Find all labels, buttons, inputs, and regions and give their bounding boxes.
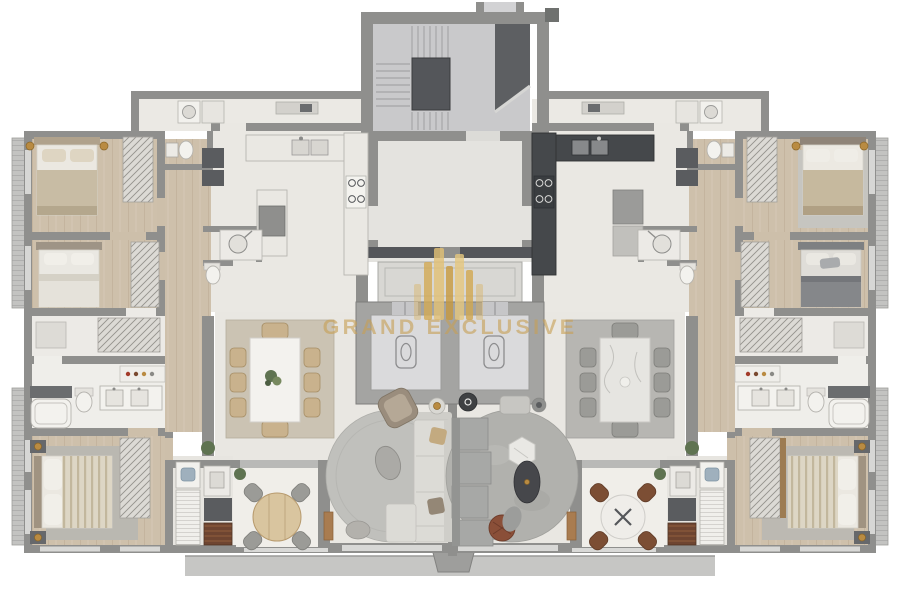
- side-table: [459, 393, 477, 411]
- bedroom-master-right: [750, 438, 870, 544]
- window: [25, 490, 31, 534]
- toiletry: [126, 372, 130, 376]
- pillow: [71, 253, 94, 265]
- oven-tower: [676, 148, 698, 168]
- wardrobe: [750, 438, 780, 518]
- window: [25, 150, 31, 194]
- door-gap: [735, 198, 743, 226]
- door-gap: [34, 356, 62, 364]
- plant: [654, 468, 666, 480]
- door-gap: [742, 428, 772, 436]
- sink: [292, 140, 309, 155]
- dining-chair: [230, 373, 246, 392]
- nightstand-lamp: [26, 142, 34, 150]
- wardrobe: [120, 438, 150, 518]
- toilet: [179, 141, 193, 159]
- console-decor: [588, 104, 600, 112]
- nightstand-lamp: [859, 534, 866, 541]
- dining-chair: [304, 398, 320, 417]
- window: [869, 490, 875, 534]
- door-gap: [126, 308, 156, 316]
- plant: [273, 377, 282, 386]
- table-bowl: [620, 377, 630, 387]
- wall: [761, 95, 769, 135]
- nightstand-lamp: [35, 534, 42, 541]
- door-gap: [220, 123, 246, 131]
- bedroom-master-left: [30, 438, 150, 544]
- toiletry: [150, 372, 154, 376]
- accent-pillow: [820, 257, 841, 269]
- closet-shelving: [740, 318, 802, 352]
- sink: [777, 390, 794, 406]
- laundry-cabinet: [676, 101, 698, 123]
- bed-blanket-striped: [788, 456, 838, 528]
- sink: [106, 390, 123, 406]
- bench: [324, 512, 333, 540]
- bed-headboard: [798, 242, 864, 250]
- plant: [234, 468, 246, 480]
- bed-headboard: [858, 456, 866, 528]
- washer-door: [705, 106, 718, 119]
- console-decor: [300, 104, 312, 112]
- bbq-cabinet: [668, 498, 696, 521]
- wardrobe: [747, 137, 777, 202]
- wardrobe: [741, 242, 769, 307]
- bedroom-mid-left: [36, 242, 159, 307]
- dining-chair: [262, 323, 288, 339]
- louver-cabinet: [176, 490, 200, 545]
- plant: [685, 441, 699, 455]
- wall: [516, 2, 524, 12]
- window: [120, 547, 160, 552]
- dining-chair: [230, 398, 246, 417]
- dining-chair: [230, 348, 246, 367]
- floor-plan-image: GRAND EXCLUSIVE: [0, 0, 900, 600]
- fridge-panel: [181, 468, 195, 481]
- window: [869, 246, 875, 290]
- bbq-area-left: [176, 462, 232, 545]
- door-gap: [157, 198, 165, 226]
- dining-chair: [262, 421, 288, 437]
- sink: [752, 390, 769, 406]
- bed-headboard: [34, 137, 100, 145]
- window: [869, 150, 875, 194]
- bed-headboard: [34, 456, 42, 528]
- pillow: [834, 149, 858, 162]
- wall: [539, 91, 769, 99]
- bed-headboard: [800, 137, 866, 145]
- sink: [311, 140, 328, 155]
- door-gap: [727, 438, 735, 462]
- toilet: [76, 392, 92, 412]
- toilet: [808, 392, 824, 412]
- wall: [361, 12, 549, 24]
- dining-chair: [654, 398, 670, 417]
- wall: [686, 316, 698, 456]
- walkin-closet-right: [740, 318, 864, 352]
- toiletry: [770, 372, 774, 376]
- pillow: [42, 149, 66, 162]
- wardrobe: [123, 137, 153, 202]
- door-gap: [165, 438, 173, 462]
- door-gap: [754, 232, 790, 240]
- modular-sofa: [457, 520, 493, 546]
- kitchen-island: [613, 190, 643, 224]
- console-bench: [500, 396, 530, 414]
- bed-throw: [803, 206, 863, 215]
- toilet: [206, 266, 220, 284]
- dining-chair: [654, 373, 670, 392]
- door-gap: [744, 308, 774, 316]
- nightstand-lamp: [792, 142, 800, 150]
- dining-chair: [612, 323, 638, 339]
- window: [40, 547, 100, 552]
- dining-chair: [580, 348, 596, 367]
- window: [740, 547, 780, 552]
- lobby-wall-dark: [362, 247, 440, 258]
- dining-chair: [304, 373, 320, 392]
- nightstand-lamp: [859, 443, 866, 450]
- wardrobe: [131, 242, 159, 307]
- wall: [476, 2, 484, 12]
- dining-chair: [580, 398, 596, 417]
- closet-shelving: [98, 318, 160, 352]
- toilet: [680, 266, 694, 284]
- dresser: [834, 322, 864, 348]
- pillow: [838, 459, 856, 490]
- faucet: [299, 137, 303, 141]
- pillow: [44, 253, 67, 265]
- floor-plan-page: GRAND EXCLUSIVE: [0, 0, 900, 600]
- window: [342, 545, 442, 551]
- bbq-sink: [210, 472, 224, 488]
- window: [244, 548, 328, 552]
- logo-bar: [455, 254, 464, 320]
- vase-top: [536, 402, 542, 408]
- window: [572, 548, 656, 552]
- dining-area-right: [566, 320, 674, 438]
- louver-cabinet: [700, 490, 724, 545]
- logo-bar: [424, 262, 432, 320]
- dining-chair: [612, 421, 638, 437]
- nightstand-lamp: [100, 142, 108, 150]
- dining-area-left: [226, 320, 334, 438]
- bench: [567, 512, 576, 540]
- faucet: [138, 388, 141, 391]
- bed-blanket-striped: [62, 456, 112, 528]
- bbq-sink: [676, 472, 690, 488]
- toiletry: [134, 372, 138, 376]
- oven-tower: [202, 170, 224, 186]
- wc-sink: [166, 143, 178, 157]
- dining-chair: [580, 373, 596, 392]
- faucet: [785, 388, 788, 391]
- plant: [265, 380, 271, 386]
- pillow: [838, 494, 856, 525]
- bbq-cabinet: [204, 498, 232, 521]
- bed-fold: [801, 276, 861, 282]
- terrace-beam: [582, 460, 660, 468]
- bath-ledge: [30, 386, 72, 398]
- toiletry: [142, 372, 146, 376]
- sink: [572, 140, 589, 155]
- wardrobe-wood-panel: [780, 438, 786, 518]
- toilet: [707, 141, 721, 159]
- logo-bar: [434, 248, 444, 320]
- terrace-beam: [240, 460, 318, 468]
- sofa-back: [452, 418, 460, 546]
- sink: [591, 140, 608, 155]
- door-gap: [128, 428, 158, 436]
- stairwell-landing: [412, 58, 450, 110]
- laundry-cabinet: [202, 101, 224, 123]
- accent-pillow: [427, 497, 446, 516]
- shaft-stub: [545, 8, 559, 22]
- nightstand-lamp: [860, 142, 868, 150]
- pouf: [346, 521, 370, 539]
- oven: [259, 206, 285, 236]
- faucet: [113, 388, 116, 391]
- sofa-chaise: [386, 504, 416, 542]
- wall: [24, 131, 32, 553]
- wall: [868, 131, 876, 553]
- wall: [202, 316, 214, 456]
- dining-chair: [654, 348, 670, 367]
- bed-fold: [39, 274, 99, 281]
- pillow: [44, 494, 62, 525]
- bedroom-mid-right: [741, 242, 864, 307]
- wall: [131, 91, 361, 99]
- door-gap: [110, 232, 146, 240]
- lobby-floor: [368, 141, 532, 262]
- pillow: [70, 149, 94, 162]
- roof-stub: [484, 2, 516, 12]
- bbq-area-right: [668, 462, 724, 545]
- bath-ledge: [828, 386, 870, 398]
- watermark-title: GRAND EXCLUSIVE: [323, 315, 578, 339]
- lobby-wall-dark: [460, 247, 538, 258]
- washer-door: [183, 106, 196, 119]
- pillow: [806, 149, 830, 162]
- side-table-top: [434, 403, 441, 410]
- toiletry: [762, 372, 766, 376]
- terrace-table: [253, 493, 301, 541]
- oven-tower: [676, 170, 698, 186]
- door-gap: [522, 206, 532, 240]
- grill: [668, 523, 696, 545]
- door-gap: [466, 131, 500, 141]
- window: [25, 246, 31, 290]
- grill: [204, 523, 232, 545]
- bed-headboard: [36, 242, 102, 250]
- door-gap: [838, 356, 866, 364]
- wc-sink: [722, 143, 734, 157]
- nightstand-lamp: [35, 443, 42, 450]
- door-gap: [368, 206, 378, 240]
- pillow: [44, 459, 62, 490]
- sink: [131, 390, 148, 406]
- wall: [361, 24, 373, 139]
- door-gap: [654, 123, 680, 131]
- dresser: [36, 322, 66, 348]
- modular-sofa: [455, 452, 491, 484]
- toiletry: [746, 372, 750, 376]
- faucet: [760, 388, 763, 391]
- faucet: [597, 137, 601, 141]
- plant: [201, 441, 215, 455]
- accent-pillow: [429, 427, 448, 446]
- bed-throw: [37, 206, 97, 215]
- oven-tower: [202, 148, 224, 168]
- logo-bar: [466, 270, 473, 320]
- dining-chair: [304, 348, 320, 367]
- wall: [131, 95, 139, 135]
- logo-bar: [446, 266, 453, 320]
- wall: [537, 24, 549, 139]
- wall: [361, 131, 549, 141]
- toiletry: [754, 372, 758, 376]
- walkin-closet-left: [36, 318, 160, 352]
- window: [800, 547, 860, 552]
- oval-table-decor: [525, 480, 530, 485]
- fridge-panel: [705, 468, 719, 481]
